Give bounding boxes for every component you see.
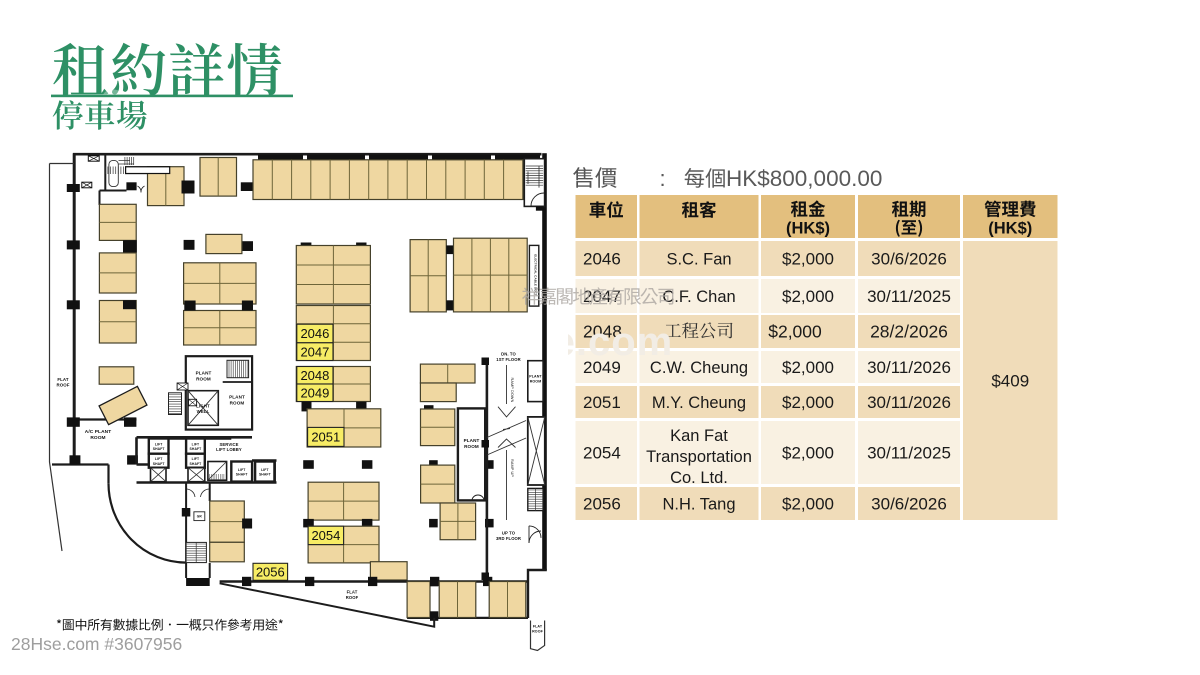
svg-text:2056: 2056	[256, 564, 285, 579]
svg-text:2056: 2056	[583, 495, 621, 514]
svg-text:(HK$): (HK$)	[786, 220, 830, 238]
svg-text:30/6/2026: 30/6/2026	[871, 495, 947, 514]
svg-text:ROOM: ROOM	[90, 435, 105, 441]
svg-text:$2,000: $2,000	[782, 393, 834, 412]
svg-text:WELL: WELL	[197, 409, 210, 414]
svg-text:$2,000: $2,000	[782, 495, 834, 514]
svg-text:ROOF: ROOF	[532, 629, 543, 633]
svg-text:SHAFT: SHAFT	[190, 447, 203, 451]
svg-text:M.Y. Cheung: M.Y. Cheung	[652, 394, 746, 412]
svg-text:(HK$): (HK$)	[988, 220, 1032, 238]
svg-text:2049: 2049	[300, 385, 329, 400]
svg-text:A/C PLANT: A/C PLANT	[85, 429, 111, 435]
svg-text:28/2/2026: 28/2/2026	[870, 322, 948, 342]
svg-text:30/11/2026: 30/11/2026	[867, 393, 951, 412]
svg-text:30/11/2025: 30/11/2025	[867, 444, 951, 463]
svg-text:28Hse.com: 28Hse.com	[100, 80, 361, 132]
svg-text:PLANT: PLANT	[529, 375, 542, 379]
svg-text:LIFT LOBBY: LIFT LOBBY	[216, 447, 242, 452]
svg-text:2046: 2046	[583, 250, 621, 269]
svg-text:LIFT: LIFT	[261, 468, 269, 472]
svg-text:LIFT: LIFT	[155, 443, 163, 447]
svg-text:ROOM: ROOM	[196, 376, 211, 381]
svg-text:ROOF: ROOF	[346, 595, 359, 600]
svg-text:$2,000: $2,000	[782, 250, 834, 269]
svg-text:PLANT: PLANT	[196, 371, 212, 376]
svg-text:RAMP UP: RAMP UP	[510, 459, 514, 477]
svg-text:Co. Ltd.: Co. Ltd.	[670, 469, 728, 487]
svg-text:$2,000: $2,000	[782, 287, 834, 306]
svg-text:SERVICE: SERVICE	[219, 442, 238, 447]
svg-text:SHAFT: SHAFT	[153, 447, 166, 451]
svg-text:PLANT: PLANT	[464, 438, 480, 443]
svg-text:LIFT: LIFT	[238, 468, 246, 472]
svg-text:S.C. Fan: S.C. Fan	[666, 251, 731, 269]
svg-text:2047: 2047	[300, 344, 329, 359]
svg-text:FLAT: FLAT	[347, 590, 358, 595]
svg-text:ROOM: ROOM	[230, 400, 245, 405]
svg-text:UP TO: UP TO	[502, 531, 516, 536]
svg-text:LIFT: LIFT	[192, 443, 200, 447]
svg-text:3RD FLOOR: 3RD FLOOR	[496, 536, 521, 541]
svg-text:$2,000: $2,000	[782, 444, 834, 463]
svg-text:2046: 2046	[300, 326, 329, 341]
svg-text:DN. TO: DN. TO	[501, 352, 516, 357]
svg-text:2054: 2054	[583, 444, 621, 463]
svg-text:FLAT: FLAT	[57, 377, 69, 382]
svg-text:PLANT: PLANT	[229, 395, 245, 400]
svg-text:HK$800,000.00: HK$800,000.00	[726, 166, 882, 191]
svg-text:LIFT: LIFT	[192, 457, 200, 461]
svg-text:SHAFT: SHAFT	[236, 473, 249, 477]
svg-text:Transportation: Transportation	[646, 448, 752, 466]
svg-text:GR: GR	[197, 515, 203, 519]
svg-text:SHAFT: SHAFT	[153, 462, 166, 466]
svg-text:LIFT: LIFT	[155, 457, 163, 461]
svg-text:SHAFT: SHAFT	[259, 473, 272, 477]
svg-text:$409: $409	[991, 372, 1029, 391]
svg-text:30/6/2026: 30/6/2026	[871, 250, 947, 269]
svg-text:FLAT: FLAT	[533, 625, 543, 629]
svg-text:1ST FLOOR: 1ST FLOOR	[496, 357, 520, 362]
svg-text:2048: 2048	[300, 368, 329, 383]
svg-text:Kan Fat: Kan Fat	[670, 427, 728, 445]
svg-text:2054: 2054	[311, 528, 340, 543]
svg-text:ROOM: ROOM	[530, 379, 542, 383]
svg-text:N.H. Tang: N.H. Tang	[662, 496, 735, 514]
svg-text:2051: 2051	[311, 430, 340, 445]
svg-text:2051: 2051	[583, 393, 621, 412]
svg-text:30/11/2025: 30/11/2025	[867, 287, 951, 306]
svg-text::: :	[660, 166, 666, 191]
svg-text:30/11/2026: 30/11/2026	[867, 358, 951, 377]
svg-text:$2,000: $2,000	[782, 358, 834, 377]
svg-text:$2,000: $2,000	[768, 322, 822, 342]
svg-text:RAMP DOWN: RAMP DOWN	[510, 378, 514, 403]
svg-text:ROOF: ROOF	[56, 383, 69, 388]
svg-text:LIGHT: LIGHT	[196, 404, 210, 409]
svg-text:SHAFT: SHAFT	[190, 462, 203, 466]
svg-text:ROOM: ROOM	[464, 444, 479, 449]
svg-text:28Hse.com #3607956: 28Hse.com #3607956	[11, 634, 182, 654]
